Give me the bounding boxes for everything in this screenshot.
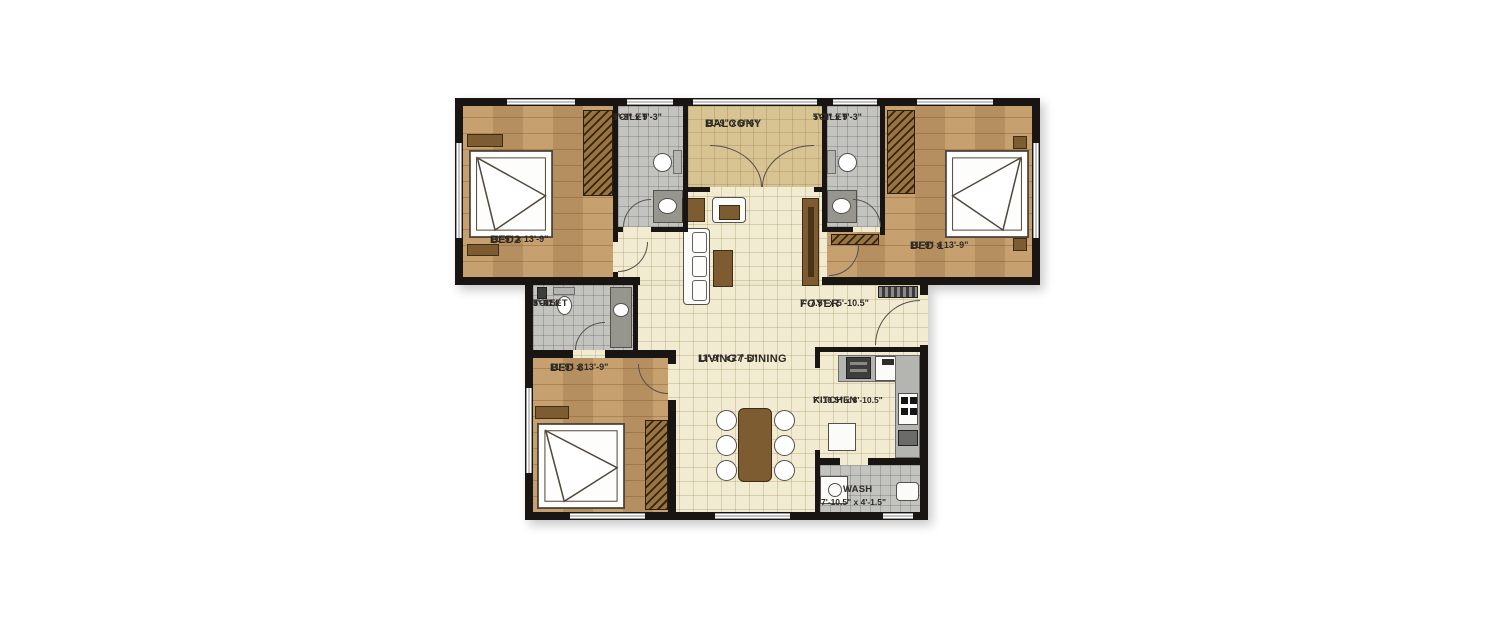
room-dims: 11'-9" x 13'-9" [490,234,548,245]
bed1-nightstand [1013,136,1027,149]
living-coffee-table [713,250,733,287]
room-dims: 11'-9" x 27'-6" [698,353,756,364]
window [507,99,575,105]
entry-steps [878,286,918,298]
toilet-tl-wc [653,153,672,172]
wall-segment [880,106,885,235]
bed1-passage-wardrobe [831,234,879,245]
kitchen-island [828,423,856,451]
living-tv-unit [802,198,819,286]
dining-chair [774,460,795,481]
wall-segment [822,277,1040,285]
living-sofa [683,228,710,305]
bed1-bed [945,150,1029,238]
room-dims: 7'-7.5" x 5'-10.5" [800,298,869,309]
room-dims: 5'-4.5" [533,298,560,309]
toilet-ml-cistern [553,287,575,295]
toilet-tr-wc [838,153,857,172]
window [570,513,645,519]
wall-segment [618,227,623,232]
toilet-ml-vanity [610,287,632,348]
dining-chair [774,435,795,456]
window [883,513,913,519]
bed3-bed [537,423,625,509]
floor-plan: BED2 11'-9" x 13'-9" TOILET 5'-3" x 9'-3… [455,98,1040,520]
bed1-nightstand [1013,238,1027,251]
wall-segment [827,227,853,232]
bed2-wardrobe [583,110,613,196]
wall-segment [683,106,688,232]
wall-segment [814,187,822,192]
room-name: WASH [843,484,872,496]
balcony-railing [693,99,817,105]
wall-segment [688,187,710,192]
room-dims: 5'-3" x 9'-3" [613,112,662,123]
wall-segment [613,106,618,242]
dining-chair [774,410,795,431]
floor-plan-page: BED2 11'-9" x 13'-9" TOILET 5'-3" x 9'-3… [0,0,1500,625]
dining-chair [716,460,737,481]
window [526,388,532,473]
wall-segment [822,106,827,232]
kitchen-oven [846,357,871,379]
wall-segment [868,458,920,465]
dining-chair [716,410,737,431]
window [917,99,993,105]
window [715,513,790,519]
wall-segment [633,285,638,358]
bed2-bed [469,150,553,238]
wash-sink [896,482,919,501]
dining-table [738,408,772,482]
toilet-tl-washbasin [658,198,677,214]
wall-segment [815,352,820,368]
room-dims: 5'-3" x 9'-3" [813,112,862,123]
window [456,143,462,238]
bed3-nightstand [535,406,569,419]
wall-segment [533,350,573,358]
bed1-wardrobe [887,110,915,194]
living-armchair [712,197,746,223]
wall-segment [605,350,668,358]
bed2-nightstand [467,134,503,147]
wall-segment [815,347,920,352]
toilet-ml-washbasin [613,303,629,317]
room-dims: 11'-9" x 6'-6" [705,118,758,129]
kitchen-sink-unit [898,430,918,446]
bed3-wardrobe [645,420,668,510]
room-dims: 7'-10.5" x 4'-1.5" [821,497,886,508]
wall-segment [920,345,928,520]
toilet-tl-cistern [673,150,682,174]
wall-segment [651,227,688,232]
room-dims: 7'-10.5" x 8'-10.5" [813,395,883,406]
kitchen-hob [898,393,918,425]
wall-segment [668,400,676,512]
wall-segment [920,285,928,295]
window [1033,143,1039,238]
room-dims: 11'-9" x 13'-9" [550,362,608,373]
wall-segment [815,458,840,465]
toilet-tr-cistern [827,150,836,174]
wall-segment [668,350,676,364]
room-dims: 11'-9" x 13'-9" [910,240,968,251]
window [627,99,673,105]
toilet-tr-washbasin [832,198,851,214]
wall-segment [613,272,618,285]
window [833,99,877,105]
dining-chair [716,435,737,456]
